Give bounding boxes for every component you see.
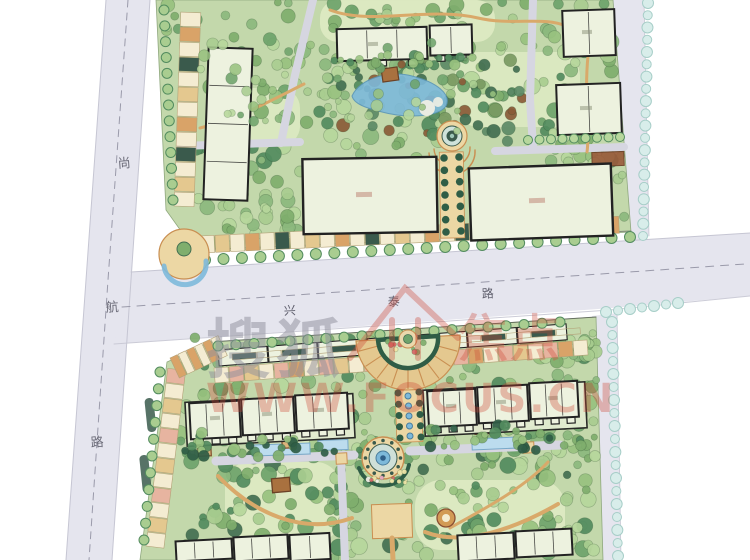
road-name-char: 路	[90, 434, 104, 451]
residence	[176, 539, 233, 560]
watermark-url: WWW.FOCUS.CN	[206, 376, 616, 422]
watermark-brand-red: 焦点	[458, 310, 562, 368]
internal-road	[216, 455, 354, 461]
road-name-char: 路	[481, 285, 494, 301]
micro-label	[582, 30, 592, 34]
residence	[457, 533, 514, 560]
site-plan-map: 尚航路兴泰路搜狐焦点WWW.FOCUS.CN	[0, 0, 750, 560]
residence	[233, 535, 288, 560]
path-node	[336, 453, 348, 465]
site-plan: 尚航路兴泰路搜狐焦点WWW.FOCUS.CN	[0, 0, 750, 560]
micro-label	[529, 198, 545, 204]
road-name-char: 航	[105, 299, 119, 316]
plaza-fountain-jet	[450, 134, 454, 138]
residence	[289, 533, 330, 560]
garden-node-core	[442, 514, 450, 522]
pergola	[371, 503, 412, 538]
micro-label	[356, 192, 372, 197]
internal-road	[495, 147, 624, 151]
west-gate-green	[177, 242, 191, 256]
micro-label	[580, 106, 592, 110]
micro-label	[368, 42, 378, 46]
internal-road	[341, 458, 345, 560]
gazebo	[271, 477, 290, 493]
main-gate-medallion-core	[404, 335, 413, 344]
residence	[203, 47, 252, 200]
axis-path	[392, 538, 393, 560]
pond-deck	[433, 97, 443, 107]
central-fountain-jet	[380, 455, 386, 461]
residence	[515, 529, 572, 558]
road-name-char: 尚	[117, 156, 131, 172]
